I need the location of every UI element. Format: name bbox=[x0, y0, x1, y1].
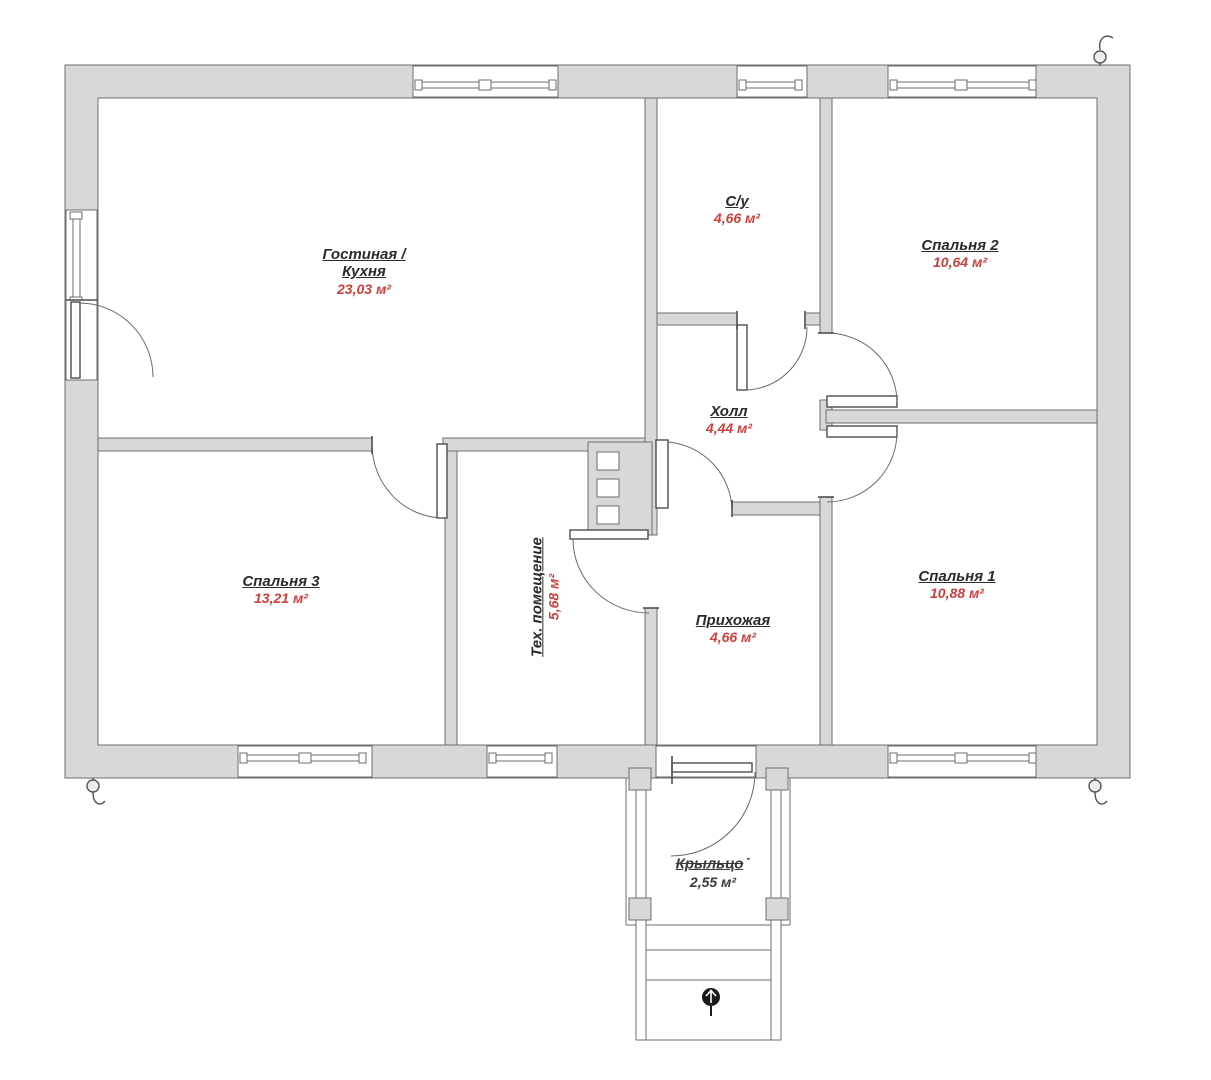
room-area-bedroom2: 10,64 м² bbox=[921, 254, 998, 270]
window-living-top bbox=[413, 66, 558, 97]
room-name-tech: Тех. помещение bbox=[528, 537, 545, 657]
window-bedroom1-bottom bbox=[888, 746, 1036, 777]
room-area-bedroom3: 13,21 м² bbox=[242, 590, 319, 606]
door-bedroom2 bbox=[818, 333, 897, 407]
corner-marker-bottom-right bbox=[1089, 778, 1107, 804]
room-label-bathroom: С/у 4,66 м² bbox=[714, 193, 760, 226]
room-name-living-line1: Гостиная / bbox=[322, 246, 405, 263]
corner-marker-top-right bbox=[1094, 36, 1113, 66]
porch-door bbox=[656, 746, 756, 856]
corner-marker-bottom-left bbox=[87, 778, 105, 804]
room-area-hall: 4,44 м² bbox=[706, 420, 752, 436]
room-label-entry: Прихожая 4,66 м² bbox=[696, 612, 770, 645]
room-name-hall: Холл bbox=[706, 403, 752, 420]
room-label-living: Гостиная / Кухня 23,03 м² bbox=[322, 246, 405, 297]
door-bedroom1 bbox=[818, 426, 897, 502]
room-label-bedroom1: Спальня 1 10,88 м² bbox=[918, 568, 995, 601]
window-bedroom2-top bbox=[888, 66, 1036, 97]
room-label-bedroom2: Спальня 2 10,64 м² bbox=[921, 237, 998, 270]
room-label-hall: Холл 4,44 м² bbox=[706, 403, 752, 436]
entry-direction-arrow bbox=[702, 988, 720, 1016]
floor-plan-drawing bbox=[0, 0, 1211, 1080]
room-name-bedroom3: Спальня 3 bbox=[242, 573, 319, 590]
room-name-living-line2: Кухня bbox=[322, 263, 405, 280]
room-label-porch: Крыльцо- 2,55 м² bbox=[676, 852, 751, 890]
floor-plan: Гостиная / Кухня 23,03 м² С/у 4,66 м² Сп… bbox=[0, 0, 1211, 1080]
vent-shaft bbox=[588, 442, 652, 535]
room-name-porch-suffix: - bbox=[746, 852, 750, 866]
window-bathroom-top bbox=[737, 66, 807, 97]
door-bedroom3 bbox=[372, 436, 447, 518]
room-label-tech: Тех. помещение 5,68 м² bbox=[528, 537, 561, 657]
room-name-entry: Прихожая bbox=[696, 612, 770, 629]
room-area-tech: 5,68 м² bbox=[546, 537, 562, 657]
window-living-left bbox=[66, 210, 97, 307]
interior-walls bbox=[98, 98, 1097, 745]
room-area-living: 23,03 м² bbox=[322, 281, 405, 297]
room-area-bedroom1: 10,88 м² bbox=[918, 585, 995, 601]
entry-door-left bbox=[66, 300, 153, 380]
window-bedroom3-bottom bbox=[238, 746, 372, 777]
room-name-bedroom1: Спальня 1 bbox=[918, 568, 995, 585]
door-tech bbox=[570, 530, 659, 613]
room-name-bedroom2: Спальня 2 bbox=[921, 237, 998, 254]
room-area-entry: 4,66 м² bbox=[696, 629, 770, 645]
room-label-bedroom3: Спальня 3 13,21 м² bbox=[242, 573, 319, 606]
room-name-bathroom: С/у bbox=[714, 193, 760, 210]
room-name-porch: Крыльцо bbox=[676, 855, 744, 872]
room-area-porch: 2,55 м² bbox=[676, 874, 751, 890]
door-hall bbox=[656, 440, 732, 517]
room-area-bathroom: 4,66 м² bbox=[714, 210, 760, 226]
door-bathroom bbox=[737, 311, 807, 390]
window-tech-bottom bbox=[487, 746, 557, 777]
